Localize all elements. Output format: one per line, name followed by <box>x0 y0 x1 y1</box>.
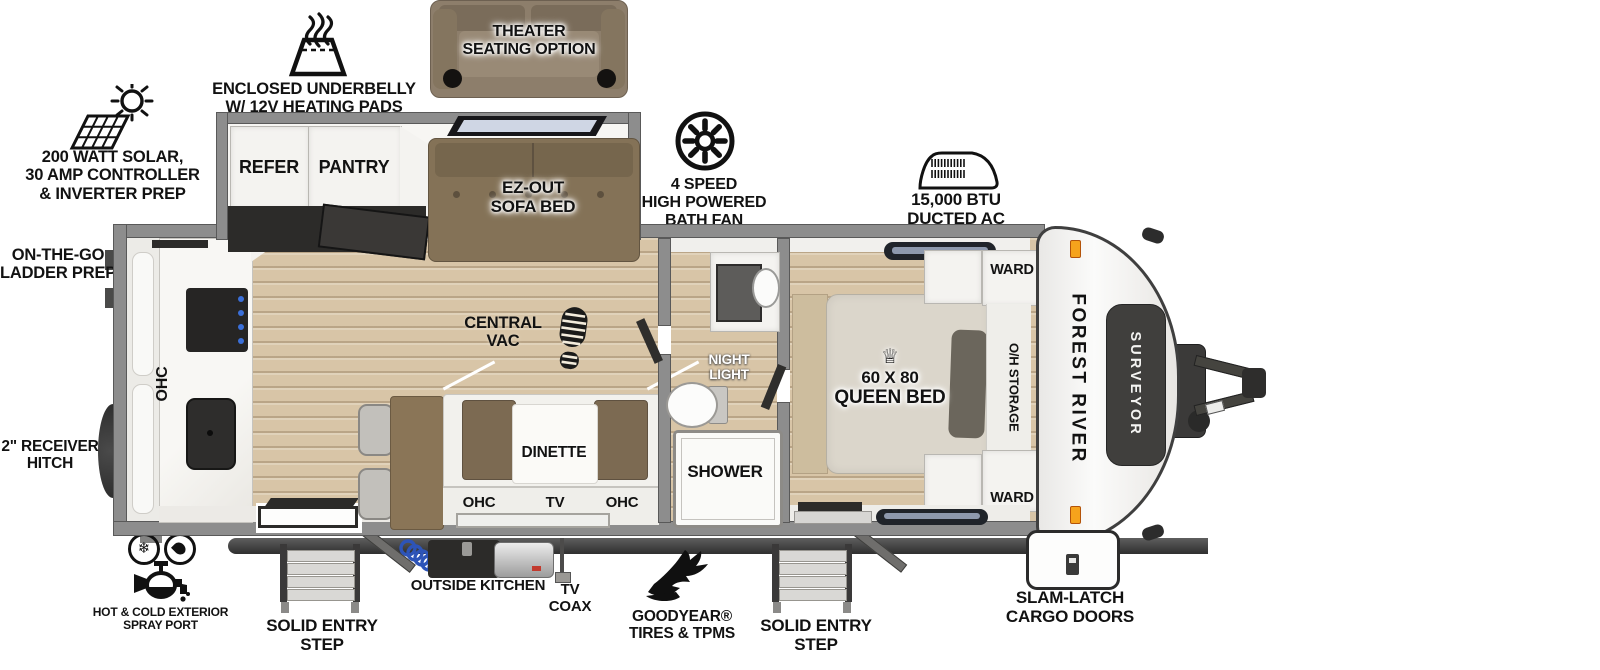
entry-door-left-threshold <box>265 498 359 506</box>
label-line: SOFA BED <box>438 197 628 216</box>
kitchen-counter <box>159 238 253 523</box>
theater-callout: THEATER SEATING OPTION <box>439 23 619 59</box>
callout-line: SPRAY PORT <box>58 619 263 632</box>
callout-line: SEATING OPTION <box>439 41 619 59</box>
ward-bottom-label: WARD <box>980 490 1044 506</box>
cargo-door-latch <box>1066 554 1079 575</box>
entry-step-left-callout: SOLID ENTRY STEP <box>250 616 394 654</box>
label-line: QUEEN BED <box>812 387 968 408</box>
tv-label: TV <box>523 495 587 512</box>
callout-line: 4 SPEED <box>630 176 778 194</box>
tv-coax-cable <box>560 538 564 576</box>
cap-trim-top <box>1141 226 1166 245</box>
outside-kitchen-tank-dot <box>532 566 541 571</box>
body-left-wall <box>113 224 127 536</box>
bath-left-wall-upper <box>658 238 671 326</box>
marker-light-bottom <box>1070 506 1081 524</box>
callout-line: HITCH <box>0 455 100 472</box>
boot-print-icon <box>552 306 592 370</box>
callout-line: SOLID ENTRY <box>744 616 888 635</box>
kitchen-sink <box>186 398 236 470</box>
entry-door-right-threshold <box>798 502 862 511</box>
refer-label: REFER <box>230 157 308 177</box>
receiver-hitch-callout: 2" RECEIVER HITCH <box>0 438 100 473</box>
coupler <box>1242 368 1266 398</box>
ward-top-label: WARD <box>980 262 1044 278</box>
spray-port-callout: HOT & COLD EXTERIOR SPRAY PORT <box>58 606 263 633</box>
callout-line: HOT & COLD EXTERIOR <box>58 606 263 619</box>
dinette-bench-left <box>462 400 516 480</box>
snowflake-icon: ❄ <box>138 540 151 557</box>
callout-line: ENCLOSED UNDERBELLY <box>195 80 433 98</box>
tv-coax-callout: TV COAX <box>540 582 600 616</box>
pantry-label: PANTRY <box>308 157 400 177</box>
heating-pads-icon <box>276 4 360 78</box>
theater-seating-graphic: THEATER SEATING OPTION <box>430 0 628 98</box>
callout-line: ON-THE-GO <box>0 246 116 264</box>
cargo-doors-callout: SLAM-LATCH CARGO DOORS <box>1004 588 1136 626</box>
entry-step-right-callout: SOLID ENTRY STEP <box>744 616 888 654</box>
shower-label: SHOWER <box>673 462 777 481</box>
dinette-chair-bottom <box>358 468 394 520</box>
callout-line: COAX <box>540 599 600 616</box>
callout-line: GOODYEAR® <box>608 608 756 625</box>
dinette-chair-top <box>358 404 394 456</box>
cupholder-left <box>443 69 462 88</box>
kitchen-ohc-label: OHC <box>154 354 172 414</box>
entry-door-right-platform <box>794 511 872 524</box>
callout-line: 30 AMP CONTROLLER <box>10 166 215 184</box>
callout-line: STEP <box>744 635 888 654</box>
queen-bed-label: 60 X 80 QUEEN BED <box>812 368 968 408</box>
callout-line: LADDER PREP <box>0 264 116 282</box>
callout-line: SLAM-LATCH <box>1004 588 1136 607</box>
callout-line: 2" RECEIVER <box>0 438 100 455</box>
callout-line: HIGH POWERED <box>630 194 778 212</box>
nightstand-top <box>924 250 982 304</box>
vanity-sink <box>752 268 780 308</box>
callout-line: STEP <box>250 635 394 654</box>
outside-kitchen-tank <box>494 542 554 578</box>
forest-river-logo: FOREST RIVER <box>1067 269 1088 489</box>
solar-icon <box>68 84 158 154</box>
sofa-bed-label: EZ-OUT SOFA BED <box>438 178 628 216</box>
bath-fan-icon <box>674 110 736 172</box>
floorplan-scene: ❄ <box>0 0 1600 670</box>
spray-port-faucet-icon <box>126 560 192 604</box>
label-line: VAC <box>458 332 548 350</box>
central-vac-label: CENTRAL VAC <box>458 314 548 351</box>
cooktop <box>186 288 248 352</box>
living-bottom-window <box>456 513 610 528</box>
cupholder-right <box>597 69 616 88</box>
callout-line: THEATER <box>439 23 619 41</box>
label-line: LIGHT <box>692 367 766 382</box>
solar-callout: 200 WATT SOLAR, 30 AMP CONTROLLER & INVE… <box>10 148 215 203</box>
kitchen-corner-trim <box>152 240 208 248</box>
entry-door-left-frame <box>258 506 358 528</box>
callout-line: & INVERTER PREP <box>10 185 215 203</box>
cargo-door <box>1026 530 1120 590</box>
callout-line: TV <box>540 582 600 599</box>
marker-light-top <box>1070 240 1081 258</box>
outside-kitchen-faucet <box>462 542 472 556</box>
rear-ohc-slot-bottom <box>132 384 154 514</box>
bath-left-wall-lower <box>658 354 671 523</box>
surveyor-logo: SURVEYOR <box>1127 309 1143 459</box>
oh-storage-label: O/H STORAGE <box>1006 332 1021 442</box>
callout-line: CARGO DOORS <box>1004 607 1136 626</box>
label-line: 60 X 80 <box>812 368 968 387</box>
outside-kitchen-callout: OUTSIDE KITCHEN <box>398 578 558 595</box>
toilet-bowl <box>666 382 718 428</box>
bath-fan-callout: 4 SPEED HIGH POWERED BATH FAN <box>630 176 778 230</box>
side-table <box>390 396 444 530</box>
label-line: NIGHT <box>692 352 766 367</box>
slideout-window <box>447 116 607 136</box>
goodyear-callout: GOODYEAR® TIRES & TPMS <box>608 608 756 643</box>
bedroom-window-bottom <box>876 509 988 525</box>
label-line: EZ-OUT <box>438 178 628 197</box>
night-light-label: NIGHT LIGHT <box>692 352 766 382</box>
goodyear-wingfoot-icon <box>642 548 720 604</box>
callout-line: TIRES & TPMS <box>608 625 756 642</box>
rear-ohc-slot-top <box>132 252 154 376</box>
dinette-bench-right <box>594 400 648 480</box>
crown-icon: ♕ <box>862 346 918 368</box>
ducted-ac-callout: 15,000 BTU DUCTED AC <box>886 190 1026 228</box>
ohc-right-label: OHC <box>590 495 654 512</box>
entry-step-left-graphic <box>280 544 360 614</box>
ladder-prep-callout: ON-THE-GO LADDER PREP <box>0 246 116 283</box>
ducted-ac-icon <box>912 146 1002 194</box>
slideout-left-wall <box>216 112 228 240</box>
bath-top-strip <box>671 238 777 252</box>
entry-step-right-graphic <box>772 544 852 614</box>
callout-line: 200 WATT SOLAR, <box>10 148 215 166</box>
callout-line: SOLID ENTRY <box>250 616 394 635</box>
ohc-left-label: OHC <box>447 495 511 512</box>
label-line: CENTRAL <box>458 314 548 332</box>
callout-line: 15,000 BTU <box>886 190 1026 209</box>
dinette-label: DINETTE <box>500 444 608 461</box>
flame-icon <box>171 540 188 557</box>
